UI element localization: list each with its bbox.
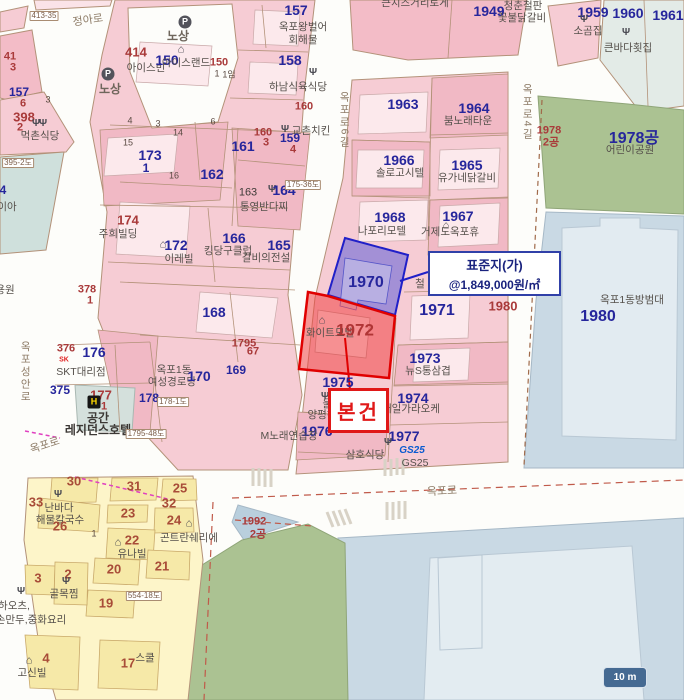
building-footprint-right xyxy=(562,218,678,440)
standard-price-callout: 표준지(가) @1,849,000원/㎡ xyxy=(428,251,561,296)
standard-callout-title: 표준지(가) xyxy=(430,255,559,274)
hotel-building xyxy=(75,385,135,432)
subject-callout: 본건 xyxy=(328,388,389,433)
pink-zone-north xyxy=(350,0,527,60)
subject-callout-label: 본건 xyxy=(337,396,380,425)
teal-parcel-left xyxy=(0,152,64,254)
scale-bar-label: 10 m xyxy=(614,672,637,683)
pink-zone-1959 xyxy=(548,0,601,66)
teal-zone-topright xyxy=(600,0,684,112)
map-base-layer xyxy=(0,0,684,700)
standard-callout-price: @1,849,000원/㎡ xyxy=(430,276,559,293)
park-1978 xyxy=(538,96,684,214)
map-scale-bar: 10 m xyxy=(603,667,647,688)
cadastral-map[interactable]: 413-35정아로P노상P노상413414아이스빈⌂150아이스랜드15011임… xyxy=(0,0,684,700)
